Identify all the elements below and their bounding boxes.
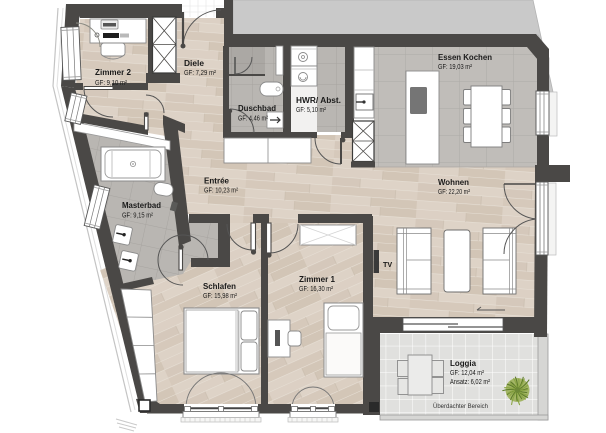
svg-text:GF: 15,98 m²: GF: 15,98 m² xyxy=(203,293,238,300)
svg-text:GF: 19,03 m²: GF: 19,03 m² xyxy=(438,64,473,71)
svg-text:GF: 16,30 m²: GF: 16,30 m² xyxy=(299,286,334,293)
svg-text:GF: 12,04 m²: GF: 12,04 m² xyxy=(450,370,485,377)
svg-text:Duschbad: Duschbad xyxy=(238,103,276,113)
svg-text:Loggia: Loggia xyxy=(450,358,476,368)
svg-text:GF: 10,23 m²: GF: 10,23 m² xyxy=(204,188,239,195)
svg-text:GF: 5,10 m²: GF: 5,10 m² xyxy=(296,107,327,114)
svg-text:Zimmer 1: Zimmer 1 xyxy=(299,274,335,284)
svg-text:Schlafen: Schlafen xyxy=(203,281,236,291)
svg-text:GF: 4,46 m²: GF: 4,46 m² xyxy=(238,116,269,123)
svg-text:TV: TV xyxy=(383,260,392,269)
svg-text:GF: 7,29 m²: GF: 7,29 m² xyxy=(184,70,217,77)
svg-text:Diele: Diele xyxy=(184,58,204,68)
svg-text:Essen Kochen: Essen Kochen xyxy=(438,52,492,62)
svg-text:GF: 22,20 m²: GF: 22,20 m² xyxy=(438,189,471,196)
svg-text:HWR/ Abst.: HWR/ Abst. xyxy=(296,95,341,105)
svg-text:Zimmer 2: Zimmer 2 xyxy=(95,67,131,77)
svg-text:GF: 9,15 m²: GF: 9,15 m² xyxy=(122,213,154,220)
svg-text:Überdachter Bereich: Überdachter Bereich xyxy=(433,402,488,410)
svg-text:Entrée: Entrée xyxy=(204,176,229,186)
svg-text:Masterbad: Masterbad xyxy=(122,200,161,210)
svg-text:Ansatz: 6,02 m²: Ansatz: 6,02 m² xyxy=(450,379,491,386)
svg-text:Wohnen: Wohnen xyxy=(438,177,469,187)
svg-text:GF: 9,10 m²: GF: 9,10 m² xyxy=(95,80,128,87)
